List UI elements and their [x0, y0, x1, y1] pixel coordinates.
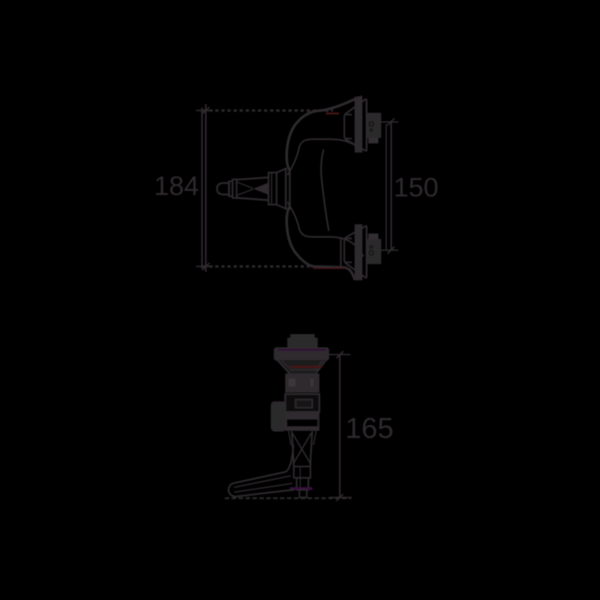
- svg-text:150: 150: [393, 172, 438, 202]
- svg-text:184: 184: [154, 171, 199, 201]
- svg-text:165: 165: [345, 413, 393, 445]
